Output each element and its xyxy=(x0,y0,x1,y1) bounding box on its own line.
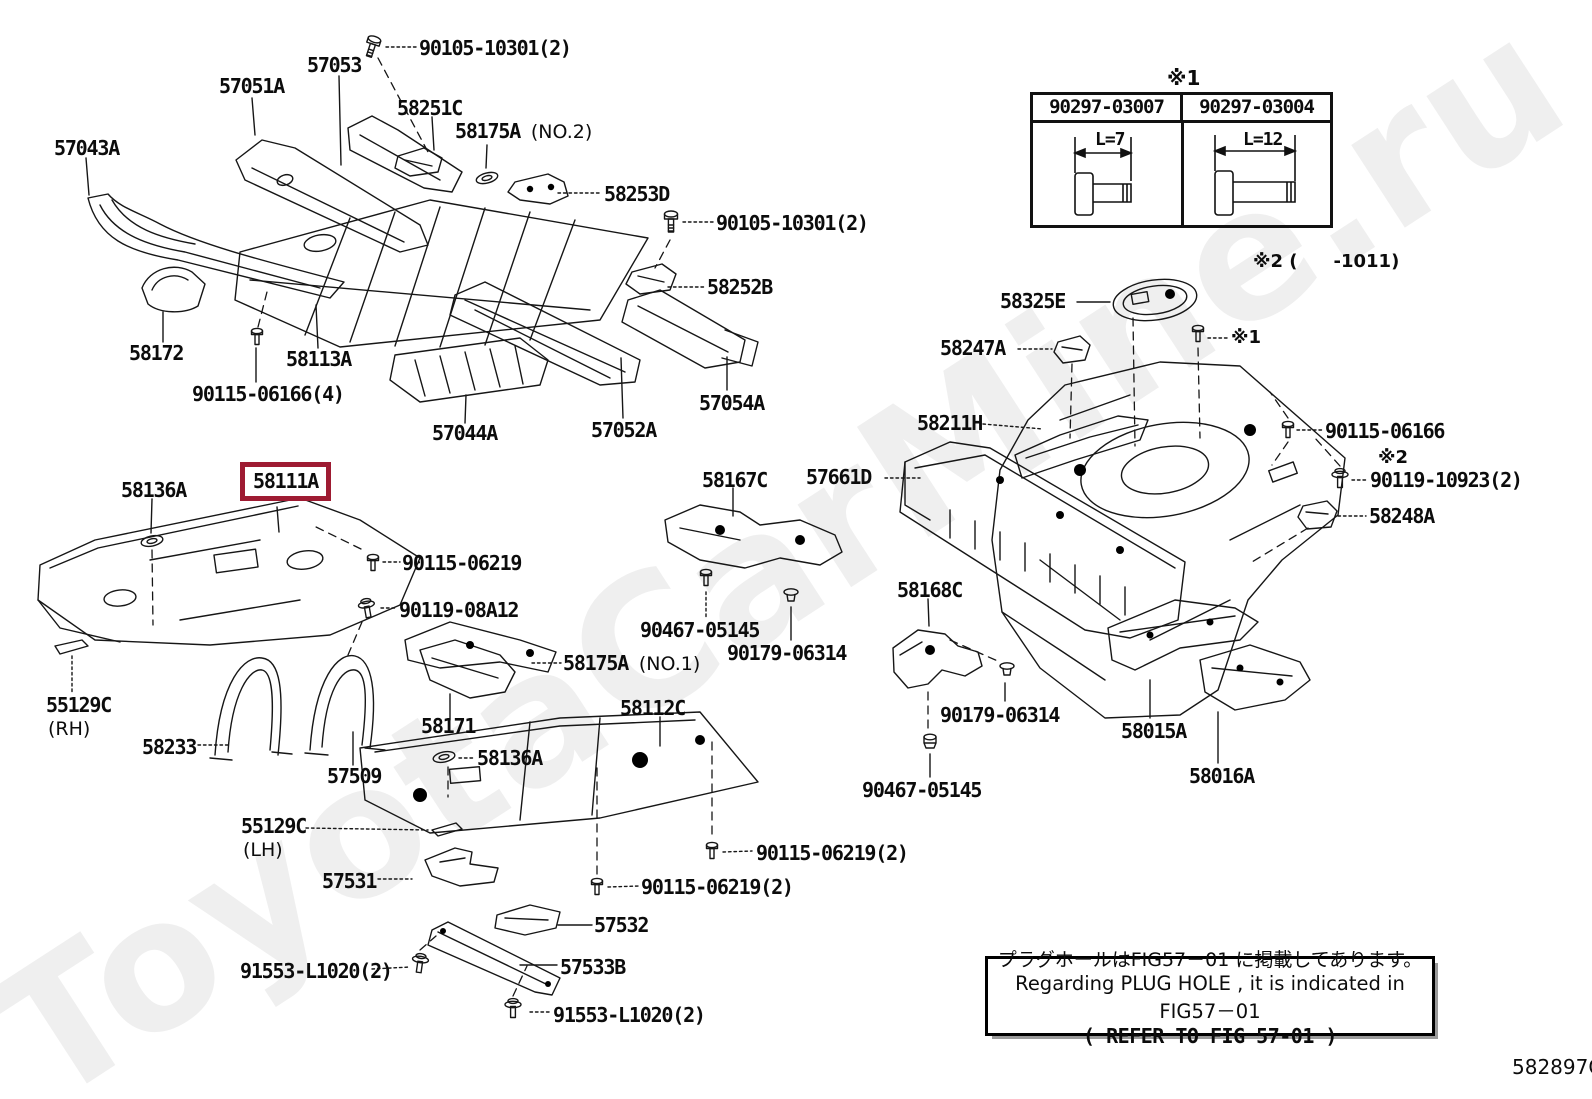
part-number-suffix: (NO.2) xyxy=(531,121,592,143)
part-label-58172: 58172 xyxy=(129,343,183,364)
part-label-57044a: 57044A xyxy=(432,423,497,444)
part-drawing-58253d xyxy=(508,174,568,204)
part-drawing-57044a xyxy=(390,338,548,402)
part-drawing-55129c-rh xyxy=(55,640,88,654)
part-drawing-57533b xyxy=(428,922,560,995)
part-label-57531: 57531 xyxy=(322,871,376,892)
screw-icon-90467-a xyxy=(701,569,712,585)
part-label-57043a: 57043A xyxy=(54,138,119,159)
part-label-58248a: 58248A xyxy=(1369,506,1434,527)
part-label-57661d: 57661D xyxy=(806,467,871,488)
part-number: 58175A xyxy=(563,651,628,675)
part-label-57053: 57053 xyxy=(307,55,361,76)
spec-col-part-number-1: 90297-03007 xyxy=(1033,95,1183,120)
part-drawing-58171 xyxy=(420,640,515,698)
parts-diagram-floor-pan: ToyotaCarMine.ru xyxy=(0,0,1592,1099)
part-label-58015a: 58015A xyxy=(1121,721,1186,742)
part-drawing-58015a xyxy=(1108,600,1258,670)
part-drawing-58247a xyxy=(1054,336,1090,363)
part-drawing-58113a xyxy=(235,200,648,347)
part-label-90119-08a12: 90119-08A12 xyxy=(399,600,518,621)
spec-table-body: L=7 L=12 xyxy=(1033,123,1330,228)
part-number: 58175A xyxy=(455,119,520,143)
part-label-58175a-no2: 58175A (NO.2) xyxy=(455,121,592,143)
part-number-suffix: (LH) xyxy=(243,841,306,861)
part-drawing-58167c xyxy=(665,505,842,568)
diagram-line-art xyxy=(0,0,1592,1099)
bolt-icon-91553-a xyxy=(411,953,429,974)
screw-icon-90115-06166 xyxy=(1283,421,1294,437)
spec-col-part-number-2: 90297-03004 xyxy=(1183,95,1330,120)
part-label-58171: 58171 xyxy=(421,716,475,737)
part-drawing-58325e xyxy=(1111,274,1200,325)
part-drawing-58112c xyxy=(360,712,758,833)
part-label-91553-l1020-b: 91553-L1020(2) xyxy=(553,1005,705,1026)
part-drawing-57509 xyxy=(305,656,385,755)
part-number: 55129C xyxy=(46,693,111,717)
part-drawing-57532 xyxy=(495,905,560,935)
part-label-90105-10301-a: 90105-10301(2) xyxy=(419,38,571,59)
ref-mark-1-bolt: ※1 xyxy=(1231,329,1261,348)
part-label-90467-05145-b: 90467-05145 xyxy=(862,780,981,801)
ref-mark-2-range: ※2 ( -1011) xyxy=(1253,253,1399,272)
spec-table-marker: ※1 xyxy=(1167,66,1200,90)
part-drawing-58111a xyxy=(38,498,420,645)
ref-mark-2: ※2 xyxy=(1378,449,1408,468)
part-label-58111a: 58111A xyxy=(253,469,318,493)
part-label-57532: 57532 xyxy=(594,915,648,936)
part-label-90179-06314-a: 90179-06314 xyxy=(727,643,846,664)
part-label-90115-06166-4: 90115-06166(4) xyxy=(192,384,344,405)
part-drawing-58252b xyxy=(626,264,676,294)
part-drawing-58175a-no1 xyxy=(405,622,556,672)
part-drawing-55129c-lh xyxy=(432,823,462,836)
note-line-english: Regarding PLUG HOLE , it is indicated in… xyxy=(988,972,1432,1024)
part-label-58252b: 58252B xyxy=(707,277,772,298)
note-line-reference: ( REFER TO FIG 57-01 ) xyxy=(988,1024,1432,1048)
part-number: 55129C xyxy=(241,814,306,838)
part-label-90115-06219: 90115-06219 xyxy=(402,553,521,574)
bolt-icon-90119-10923 xyxy=(1332,469,1348,488)
part-label-58211h: 58211H xyxy=(917,413,982,434)
part-label-90115-06166: 90115-06166 xyxy=(1325,421,1444,442)
part-label-57509: 57509 xyxy=(327,766,381,787)
part-label-57533b: 57533B xyxy=(560,957,625,978)
part-drawing-58251c xyxy=(395,148,442,176)
part-label-58167c: 58167C xyxy=(702,470,767,491)
part-drawing-rear-floor-pan xyxy=(992,362,1345,718)
part-label-90105-10301-b: 90105-10301(2) xyxy=(716,213,868,234)
plug-hole-note-box: プラグホールはFIG57－01 に掲載してあります。 Regarding PLU… xyxy=(985,956,1435,1036)
part-label-57054a: 57054A xyxy=(699,393,764,414)
part-label-55129c-rh: 55129C(RH) xyxy=(46,695,111,740)
grommet-icon-90179-b xyxy=(1000,663,1014,675)
part-drawing-58248a xyxy=(1298,501,1337,529)
part-label-58251c: 58251C xyxy=(397,98,462,119)
highlighted-part-frame: 58111A xyxy=(240,462,331,501)
clip-58175a-no2 xyxy=(475,170,499,185)
part-label-90467-05145-a: 90467-05145 xyxy=(640,620,759,641)
screw-icon-90115-06166-4 xyxy=(252,328,263,344)
part-label-58233: 58233 xyxy=(142,737,196,758)
part-label-58175a-no1: 58175A (NO.1) xyxy=(563,653,700,675)
spec-table-header: 90297-03007 90297-03004 xyxy=(1033,95,1330,123)
part-drawing-57054a xyxy=(622,290,758,368)
note-line-japanese: プラグホールはFIG57－01 に掲載してあります。 xyxy=(988,945,1432,972)
part-drawing-58016a xyxy=(1200,645,1310,710)
part-label-58113a: 58113A xyxy=(286,349,351,370)
grommet-icon-90179-a xyxy=(784,589,798,601)
screw-icon-90115-06219 xyxy=(368,554,379,570)
clip-58136a-b xyxy=(432,750,456,764)
part-drawing-57043a xyxy=(88,194,344,298)
screw-icon-90115-06219-2a xyxy=(707,842,718,858)
screw-icon-90115-06219-2b xyxy=(592,878,603,894)
part-drawing-58172 xyxy=(142,267,205,312)
part-label-90179-06314-b: 90179-06314 xyxy=(940,705,1059,726)
spec-bolt-drawings xyxy=(1033,123,1330,228)
part-label-57052a: 57052A xyxy=(591,420,656,441)
part-label-58136a-b: 58136A xyxy=(477,748,542,769)
part-label-58325e: 58325E xyxy=(1000,291,1065,312)
part-label-90119-10923: 90119-10923(2) xyxy=(1370,470,1522,491)
part-label-90115-06219-2-a: 90115-06219(2) xyxy=(756,843,908,864)
part-label-58112c: 58112C xyxy=(620,698,685,719)
part-number-suffix: (RH) xyxy=(48,720,111,740)
part-label-58136a-a: 58136A xyxy=(121,480,186,501)
part-label-57051a: 57051A xyxy=(219,76,284,97)
part-number-suffix: (NO.1) xyxy=(639,653,700,675)
bolt-spec-table: 90297-03007 90297-03004 L=7 L=12 xyxy=(1030,92,1333,228)
part-label-58253d: 58253D xyxy=(604,184,669,205)
part-label-91553-l1020-a: 91553-L1020(2) xyxy=(240,961,392,982)
clip-58136a-a xyxy=(140,534,164,548)
part-label-90115-06219-2-b: 90115-06219(2) xyxy=(641,877,793,898)
part-label-58168c: 58168C xyxy=(897,580,962,601)
nut-icon-90467-b xyxy=(924,734,936,748)
bolt-icon-90105-b xyxy=(665,211,678,232)
part-drawing-57531 xyxy=(425,848,498,886)
part-drawing-58168c xyxy=(893,630,982,688)
part-label-55129c-lh: 55129C(LH) xyxy=(241,816,306,861)
bolt-icon-90105-a xyxy=(363,35,382,59)
figure-code: 582897G xyxy=(1512,1055,1592,1079)
part-label-58016a: 58016A xyxy=(1189,766,1254,787)
screw-icon-ref1 xyxy=(1193,325,1204,341)
part-label-58247a: 58247A xyxy=(940,338,1005,359)
bolt-icon-91553-b xyxy=(505,999,521,1018)
